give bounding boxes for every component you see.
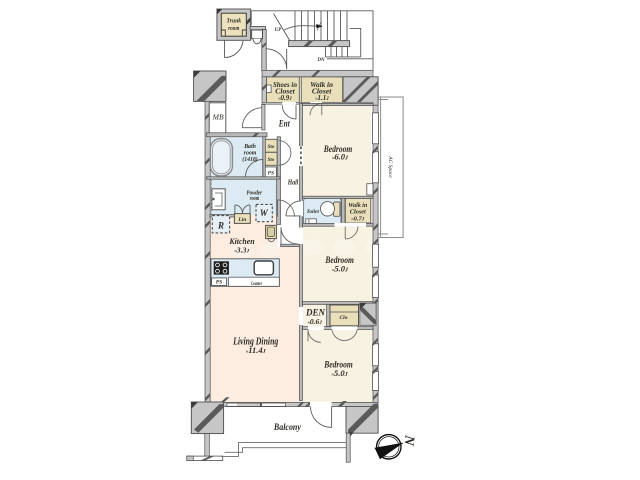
svg-text:(1418): (1418) — [242, 156, 258, 163]
svg-text:UP: UP — [275, 28, 281, 33]
svg-text:Sto: Sto — [268, 145, 275, 150]
svg-text:Bath: Bath — [243, 144, 256, 150]
svg-text:room: room — [250, 196, 260, 202]
svg-text:R: R — [217, 221, 224, 231]
svg-text:Sto: Sto — [268, 158, 275, 163]
svg-text:Hall: Hall — [287, 179, 298, 187]
svg-text:DN: DN — [317, 58, 325, 63]
svg-text:Closet: Closet — [350, 209, 366, 216]
svg-text:Kitchen: Kitchen — [228, 236, 254, 246]
svg-text:AC Space: AC Space — [387, 155, 393, 178]
svg-text:PS: PS — [216, 280, 222, 286]
svg-text:Toilet: Toilet — [307, 209, 320, 215]
svg-text:Trunk: Trunk — [227, 18, 242, 24]
svg-text:W: W — [260, 208, 269, 218]
svg-text:room: room — [244, 151, 257, 157]
svg-text:Clo: Clo — [340, 315, 348, 321]
svg-text:PS: PS — [268, 171, 274, 177]
svg-text:Ent: Ent — [278, 118, 290, 128]
svg-text:MB: MB — [212, 114, 225, 122]
svg-text:Lin: Lin — [237, 217, 246, 223]
svg-text:≈0.7J: ≈0.7J — [351, 216, 364, 223]
svg-text:Counter: Counter — [251, 281, 263, 287]
svg-text:room: room — [228, 26, 239, 32]
svg-text:Balcony: Balcony — [273, 422, 302, 432]
